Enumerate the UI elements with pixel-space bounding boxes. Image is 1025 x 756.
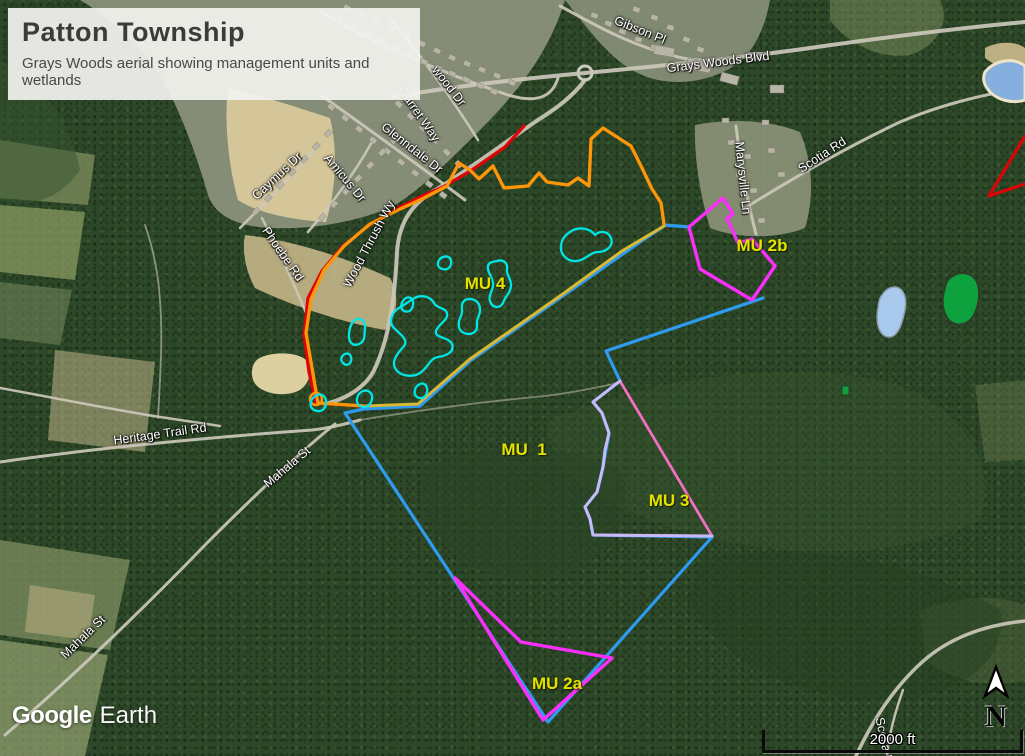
logo-google: Google [12, 702, 92, 729]
wetland-outline [341, 354, 351, 365]
building [728, 140, 735, 145]
building [748, 52, 764, 60]
wetland-outline [438, 256, 451, 269]
building [742, 206, 749, 211]
wetland-outline [488, 260, 511, 306]
suburb-area-ne [565, 0, 770, 82]
map-viewport[interactable]: Gibson PlGrays Woods Blvdwood DrGarret W… [0, 0, 1025, 756]
building [770, 85, 784, 93]
building [758, 218, 765, 223]
pond-green [943, 273, 979, 325]
north-letter: N [974, 705, 1018, 729]
left-fields-3 [0, 282, 72, 345]
page-title: Patton Township [22, 17, 406, 48]
forest-dark-1 [690, 552, 1001, 700]
mu1-boundary-blue-2 [664, 225, 689, 227]
building [736, 172, 743, 177]
title-card: Patton Township Grays Woods aerial showi… [8, 8, 420, 100]
left-fields-2 [0, 205, 85, 280]
pond-light-blue [877, 287, 906, 337]
pond-green-small [842, 386, 849, 395]
building [720, 72, 740, 85]
building [439, 191, 448, 199]
aerial-map-canvas[interactable] [0, 0, 1025, 756]
scale-bar: 2000 ft [762, 730, 1023, 753]
field-ne [830, 0, 944, 56]
forest-dark-2 [420, 448, 625, 581]
scale-bar-label: 2000 ft [765, 731, 1020, 748]
building [750, 188, 757, 193]
building [762, 120, 769, 125]
google-earth-logo: GoogleEarth [12, 702, 157, 730]
wetland-outline [561, 228, 612, 261]
red-edge-mark [989, 136, 1025, 196]
logo-earth: Earth [100, 702, 157, 729]
page-subtitle: Grays Woods aerial showing management un… [22, 55, 406, 89]
building [768, 148, 775, 153]
wetland-outline [415, 384, 428, 399]
field-e [975, 380, 1025, 462]
sediment-basin [252, 353, 310, 394]
north-arrow-icon [974, 664, 1018, 700]
north-indicator: N [974, 664, 1018, 729]
building [744, 154, 751, 159]
wetland-outline [459, 299, 480, 334]
building [778, 172, 785, 177]
building [722, 118, 729, 123]
